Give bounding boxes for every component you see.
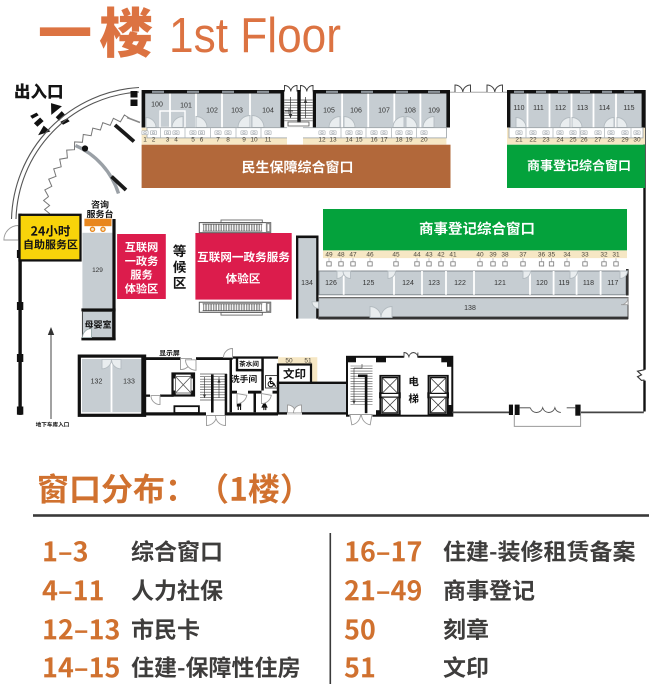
svg-text:1st Floor: 1st Floor — [169, 9, 341, 63]
svg-text:16: 16 — [370, 137, 378, 144]
svg-text:12: 12 — [318, 137, 326, 144]
svg-text:118: 118 — [583, 280, 594, 287]
svg-text:28: 28 — [607, 137, 615, 144]
svg-text:20: 20 — [420, 137, 428, 144]
svg-text:21: 21 — [515, 137, 523, 144]
svg-text:33: 33 — [581, 252, 589, 259]
svg-text:129: 129 — [92, 267, 103, 274]
svg-text:17: 17 — [380, 137, 388, 144]
svg-text:25: 25 — [569, 137, 577, 144]
svg-text:112: 112 — [555, 105, 566, 112]
svg-text:31: 31 — [612, 252, 620, 259]
svg-text:126: 126 — [325, 280, 337, 287]
svg-text:115: 115 — [623, 105, 634, 112]
svg-text:15: 15 — [355, 137, 363, 144]
svg-text:22: 22 — [529, 137, 537, 144]
svg-text:2: 2 — [152, 137, 156, 144]
svg-text:41: 41 — [449, 252, 457, 259]
svg-text:29: 29 — [621, 137, 629, 144]
svg-text:14: 14 — [345, 137, 353, 144]
svg-text:138: 138 — [464, 305, 476, 312]
svg-text:44: 44 — [413, 252, 421, 259]
svg-text:102: 102 — [206, 108, 218, 115]
svg-text:108: 108 — [404, 108, 416, 115]
svg-text:30: 30 — [633, 137, 641, 144]
svg-text:1: 1 — [143, 137, 147, 144]
svg-text:113: 113 — [577, 105, 588, 112]
svg-text:42: 42 — [437, 252, 445, 259]
svg-text:103: 103 — [231, 108, 243, 115]
svg-text:10: 10 — [250, 137, 258, 144]
svg-text:26: 26 — [580, 137, 588, 144]
svg-text:6: 6 — [200, 137, 204, 144]
svg-text:114: 114 — [599, 105, 610, 112]
svg-text:133: 133 — [123, 379, 135, 386]
svg-text:119: 119 — [558, 280, 569, 287]
svg-text:8: 8 — [226, 137, 230, 144]
svg-text:120: 120 — [536, 280, 548, 287]
svg-text:32: 32 — [600, 252, 608, 259]
svg-text:101: 101 — [180, 103, 192, 110]
svg-text:45: 45 — [392, 252, 400, 259]
svg-text:5: 5 — [191, 137, 195, 144]
svg-text:27: 27 — [594, 137, 602, 144]
svg-text:43: 43 — [425, 252, 433, 259]
svg-text:122: 122 — [454, 280, 466, 287]
svg-text:104: 104 — [262, 108, 274, 115]
svg-text:35: 35 — [548, 252, 556, 259]
svg-text:34: 34 — [563, 252, 571, 259]
svg-text:7: 7 — [216, 137, 220, 144]
svg-text:125: 125 — [363, 280, 375, 287]
svg-text:132: 132 — [91, 379, 103, 386]
svg-text:47: 47 — [349, 252, 357, 259]
svg-text:107: 107 — [378, 108, 390, 115]
svg-text:4: 4 — [174, 137, 178, 144]
svg-text:3: 3 — [166, 137, 170, 144]
svg-text:106: 106 — [350, 108, 362, 115]
svg-text:38: 38 — [501, 252, 509, 259]
svg-text:40: 40 — [476, 252, 484, 259]
svg-text:111: 111 — [533, 105, 544, 112]
svg-text:9: 9 — [242, 137, 246, 144]
svg-text:39: 39 — [489, 252, 497, 259]
svg-text:37: 37 — [519, 252, 527, 259]
svg-text:109: 109 — [428, 108, 440, 115]
svg-text:124: 124 — [402, 280, 414, 287]
svg-text:105: 105 — [323, 108, 335, 115]
svg-text:134: 134 — [301, 280, 313, 287]
svg-text:123: 123 — [428, 280, 440, 287]
svg-text:19: 19 — [405, 137, 413, 144]
svg-text:18: 18 — [395, 137, 403, 144]
svg-text:13: 13 — [329, 137, 337, 144]
svg-text:121: 121 — [494, 280, 506, 287]
svg-text:100: 100 — [151, 102, 163, 109]
svg-text:36: 36 — [538, 252, 546, 259]
svg-text:49: 49 — [325, 252, 333, 259]
svg-text:117: 117 — [607, 280, 618, 287]
svg-text:110: 110 — [513, 105, 524, 112]
svg-text:23: 23 — [542, 137, 550, 144]
svg-text:48: 48 — [337, 252, 345, 259]
svg-text:24: 24 — [556, 137, 564, 144]
svg-text:46: 46 — [366, 252, 374, 259]
svg-text:11: 11 — [265, 137, 272, 144]
